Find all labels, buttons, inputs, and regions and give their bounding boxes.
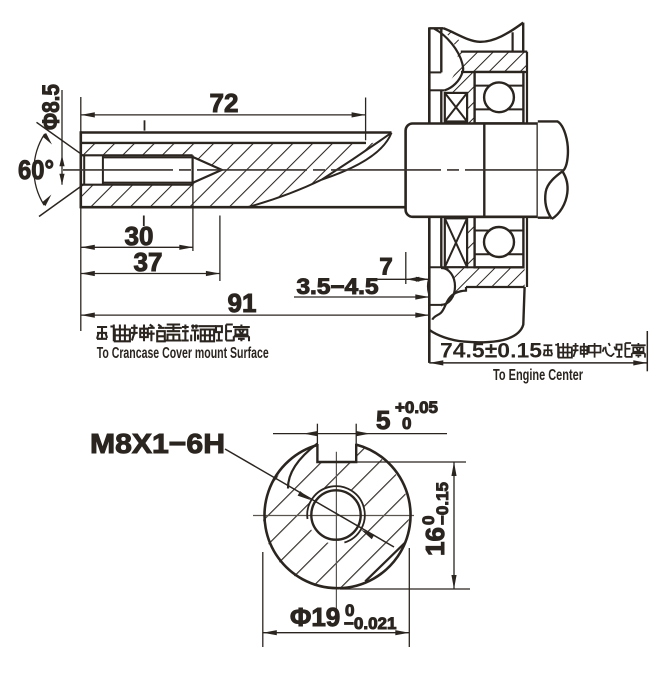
svg-text:M8X1−6H: M8X1−6H [90,428,225,459]
svg-text:To Crancase Cover mount Surfac: To Crancase Cover mount Surface [97,345,269,362]
svg-text:To Engine Center: To Engine Center [493,367,583,384]
svg-text:0: 0 [402,414,411,433]
svg-text:−0.15: −0.15 [433,482,452,525]
svg-text:72: 72 [210,88,239,118]
svg-text:37: 37 [134,247,163,277]
svg-text:7: 7 [379,254,392,281]
svg-text:5: 5 [376,405,390,435]
svg-text:−0.021: −0.021 [344,614,396,633]
svg-text:Φ8.5: Φ8.5 [38,84,65,130]
svg-text:60°: 60° [18,155,54,185]
svg-text:16: 16 [420,527,450,556]
svg-text:91: 91 [228,288,257,318]
svg-text:3.5−4.5: 3.5−4.5 [297,274,379,299]
svg-text:Φ19: Φ19 [290,602,340,632]
svg-text:74.5±0.15: 74.5±0.15 [440,340,542,363]
